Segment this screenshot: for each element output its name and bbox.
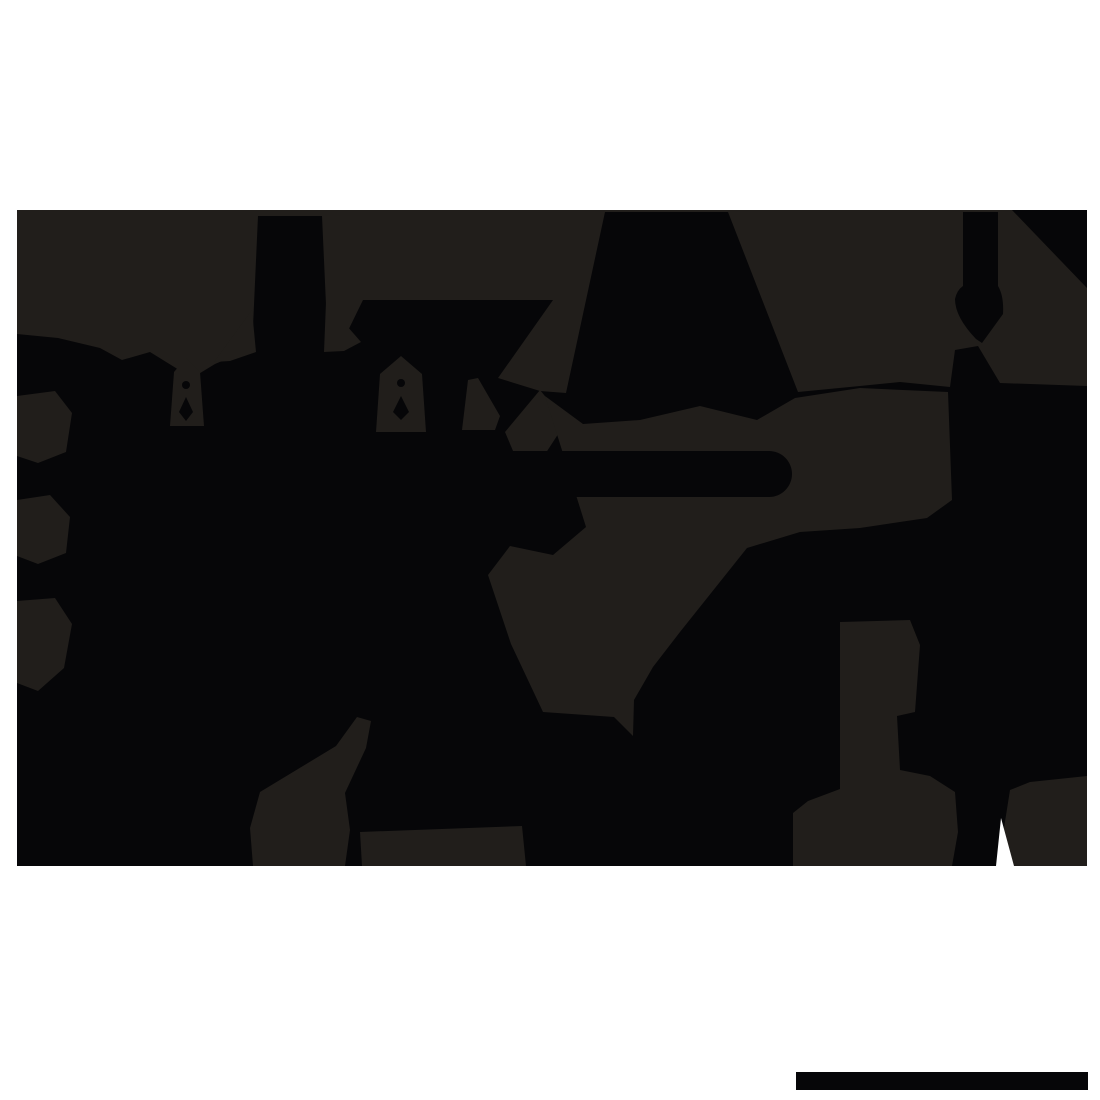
finial-center-ball [397,379,405,387]
bottom-right-corner-patch [1004,776,1087,866]
silhouette-artwork [0,0,1100,1100]
finial-left-ball [182,381,190,389]
canvas [0,0,1100,1100]
bottom-band-patch [360,826,526,866]
capsule-bar [500,451,792,497]
watermark-bar [796,1072,1088,1090]
